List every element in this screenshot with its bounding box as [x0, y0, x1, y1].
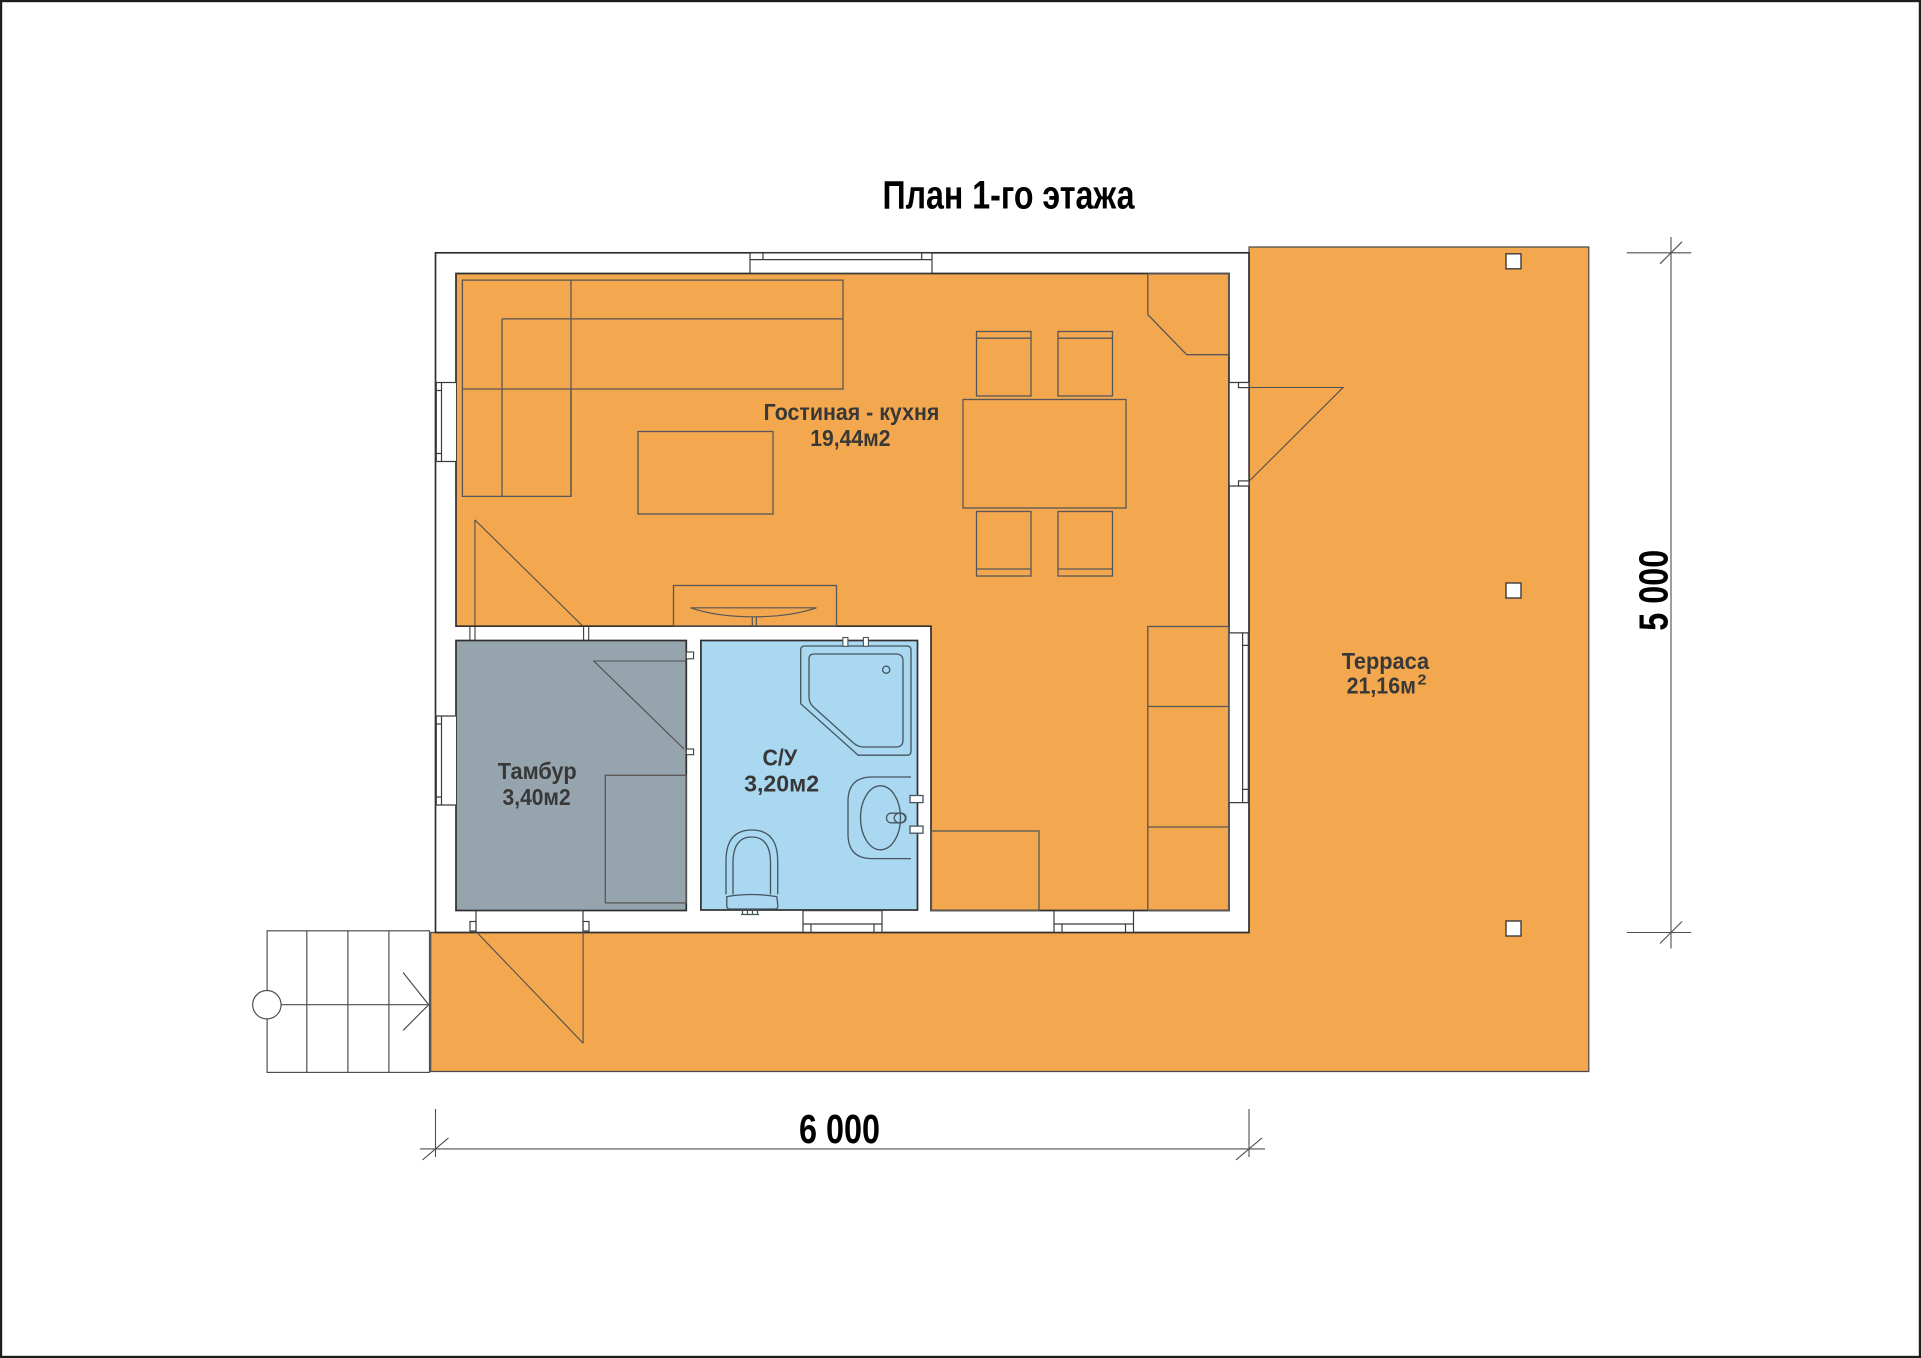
svg-text:Гостиная - кухня: Гостиная - кухня — [764, 399, 940, 425]
svg-text:5 000: 5 000 — [1630, 550, 1676, 631]
svg-text:Терраса: Терраса — [1342, 648, 1430, 674]
svg-text:План 1-го этажа: План 1-го этажа — [883, 173, 1136, 217]
svg-text:Тамбур: Тамбур — [498, 758, 577, 784]
svg-text:19,44м2: 19,44м2 — [810, 425, 890, 451]
svg-text:С/У: С/У — [762, 745, 797, 771]
svg-text:3,40м2: 3,40м2 — [503, 784, 571, 810]
svg-text:21,16м: 21,16м — [1347, 672, 1416, 698]
svg-text:3,20м2: 3,20м2 — [744, 770, 819, 796]
svg-text:6 000: 6 000 — [799, 1106, 880, 1152]
svg-text:2: 2 — [1418, 673, 1427, 689]
